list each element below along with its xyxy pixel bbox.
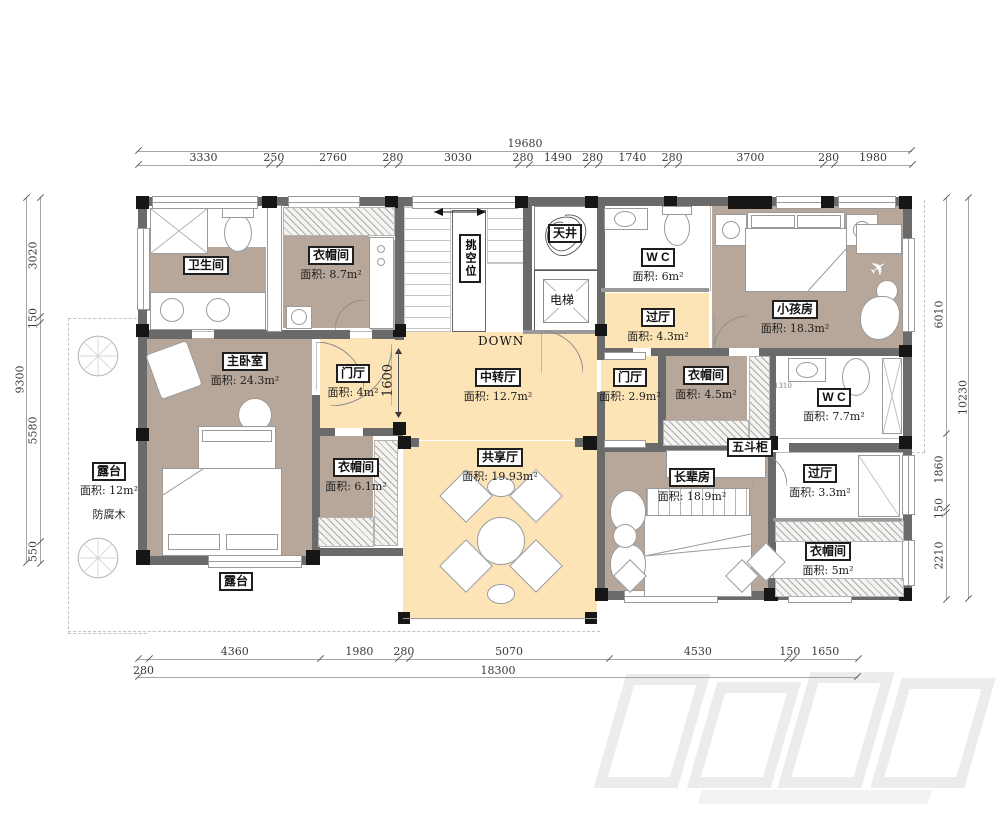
pillow <box>797 215 841 228</box>
wardrobe-hatch <box>318 517 374 547</box>
oval-stool <box>487 584 515 604</box>
window <box>838 196 896 209</box>
dim-label: 3020 <box>27 229 40 283</box>
room-area: 面积: 6m² <box>612 268 704 284</box>
room-label-cloak-right: 衣帽间 面积: 5m² <box>786 542 870 578</box>
room-note: 防腐木 <box>78 506 140 522</box>
room-name: 共享厅 <box>477 448 523 467</box>
room-label-shared: 共享厅 面积: 19.93m² <box>438 448 562 484</box>
right-property-dash <box>924 200 925 452</box>
door-leaf <box>604 440 646 448</box>
dim-label: 280 <box>571 151 615 164</box>
watermark <box>610 668 1000 828</box>
dim-label: 1650 <box>803 645 847 658</box>
room-name: 小孩房 <box>772 300 818 319</box>
column <box>393 422 406 435</box>
dim-label: 5070 <box>487 645 531 658</box>
column <box>136 324 149 337</box>
dim-line <box>40 197 41 563</box>
dim-total-left: 9300 <box>14 353 27 407</box>
dim-label: 250 <box>252 151 296 164</box>
dim-tick <box>943 596 950 603</box>
wall-stairs-left <box>395 206 404 340</box>
toilet-tank <box>662 206 692 215</box>
column <box>821 196 834 208</box>
dim-label: 6010 <box>933 288 946 342</box>
dim-label: 2210 <box>933 528 946 582</box>
column <box>595 324 607 336</box>
dim-label: 280 <box>807 151 851 164</box>
dim-label: 5580 <box>27 404 40 458</box>
room-name: 露台 <box>92 462 126 481</box>
room-name: 衣帽间 <box>308 246 354 265</box>
floor-plan: 挑空位 DOWN 天井 电梯 <box>0 0 1000 833</box>
dim-label: 4360 <box>213 645 257 658</box>
shower-panel <box>882 358 902 434</box>
room-label-kids: 小孩房 面积: 18.3m² <box>742 300 848 336</box>
room-label-bathroom: 卫生间 <box>152 256 260 275</box>
room-label-master: 主卧室 面积: 24.3m² <box>192 352 298 388</box>
room-area: 面积: 4m² <box>322 384 384 400</box>
room-name: 中转厅 <box>475 368 521 387</box>
dim-label: 280 <box>650 151 694 164</box>
terrace-bottom-dash <box>68 631 600 632</box>
room-area: 面积: 18.3m² <box>742 320 848 336</box>
wall-topleft-b <box>214 330 350 339</box>
room-area: 面积: 5m² <box>786 562 870 578</box>
dim-label: 150 <box>27 291 40 345</box>
pillow <box>751 215 795 228</box>
room-name: 天井 <box>548 224 582 243</box>
room-label-dresser: 五斗柜 <box>718 438 782 457</box>
dim-label: 280 <box>122 664 166 677</box>
dim-label: 1980 <box>851 151 895 164</box>
room-label-hall-top: 过厅 面积: 4.3m² <box>612 308 704 344</box>
room-label-terrace-bottom: 露台 <box>208 572 264 591</box>
sink-icon <box>796 362 818 378</box>
dim-total-top: 19680 <box>495 137 555 150</box>
dim-line <box>138 659 858 660</box>
dim-total-bottom-line <box>138 677 858 678</box>
toilet-icon <box>664 210 690 246</box>
room-area: 面积: 4.3m² <box>612 328 704 344</box>
room-name: W C <box>817 388 850 407</box>
room-area: 面积: 7.7m² <box>786 408 882 424</box>
dim-label: 3330 <box>181 151 225 164</box>
room-label-cloak-mid: 衣帽间 面积: 4.5m² <box>662 366 750 402</box>
door-arc <box>335 300 365 330</box>
room-name: 主卧室 <box>222 352 268 371</box>
tree-icon <box>76 536 120 580</box>
toilet-icon <box>224 214 252 252</box>
skywell-label: 天井 <box>536 224 594 243</box>
dim-line <box>946 197 947 599</box>
dim-label: 3700 <box>728 151 772 164</box>
room-label-terrace-left: 露台 面积: 12m² 防腐木 <box>78 462 140 522</box>
toilet-tank <box>222 208 254 218</box>
column <box>899 345 912 357</box>
column <box>583 436 597 450</box>
wall-foyer-cloak-a <box>315 428 335 436</box>
duct-shaft <box>267 205 282 332</box>
side-table <box>613 524 637 548</box>
wall-skywell-left <box>523 206 532 332</box>
column <box>585 196 598 208</box>
window <box>137 228 150 310</box>
room-name: 露台 <box>219 572 253 591</box>
room-name: 过厅 <box>803 464 837 483</box>
room-area: 面积: 3.3m² <box>778 484 862 500</box>
tall-cabinet <box>858 455 900 517</box>
appliance-drum <box>291 309 307 325</box>
room-area: 面积: 2.9m² <box>598 388 662 404</box>
wardrobe-hatch <box>775 521 904 542</box>
inner-dim-1600 <box>398 350 399 414</box>
room-area: 面积: 12.7m² <box>446 388 550 404</box>
column <box>262 196 277 208</box>
dim-label: 4530 <box>676 645 720 658</box>
door-leaf <box>604 352 646 360</box>
window <box>208 555 302 568</box>
dim-label: 550 <box>27 524 40 578</box>
room-name: 五斗柜 <box>727 438 773 457</box>
sink-icon <box>614 211 636 227</box>
room-label-wc-right: W C 面积: 7.7m² <box>786 388 882 424</box>
room-area: 面积: 6.1m² <box>312 478 400 494</box>
wardrobe-hatch <box>775 578 904 597</box>
dim-tick <box>908 147 915 154</box>
elevator-label: 电梯 <box>548 291 576 308</box>
room-area: 面积: 24.3m² <box>192 372 298 388</box>
room-label-elder: 长辈房 面积: 18.9m² <box>634 468 750 504</box>
wall-cloak-bottom <box>312 548 403 556</box>
room-name: 衣帽间 <box>683 366 729 385</box>
wardrobe-hatch <box>283 207 395 236</box>
room-label-hall-right: 过厅 面积: 3.3m² <box>778 464 862 500</box>
column <box>899 196 912 209</box>
room-area: 面积: 19.93m² <box>438 468 562 484</box>
room-area: 面积: 18.9m² <box>634 488 750 504</box>
dim-label: 280 <box>371 151 415 164</box>
room-area: 面积: 12m² <box>78 482 140 498</box>
shared-hall-rail <box>403 618 597 619</box>
column <box>515 196 528 208</box>
room-label-cloak-top: 衣帽间 面积: 8.7m² <box>283 246 379 282</box>
dim-label: 2760 <box>311 151 355 164</box>
window <box>902 455 915 515</box>
sofa-back <box>202 430 272 442</box>
column <box>136 196 149 209</box>
room-label-cloak-master: 衣帽间 面积: 6.1m² <box>312 458 400 494</box>
window <box>902 238 915 332</box>
room-name: 门厅 <box>613 368 647 387</box>
tree-icon <box>76 334 120 378</box>
room-label-foyer-small: 门厅 面积: 2.9m² <box>598 368 662 404</box>
door-arc <box>541 331 583 373</box>
room-label-foyer-master: 门厅 面积: 4m² <box>322 364 384 400</box>
stairs-flight-right <box>487 206 524 264</box>
room-name: 门厅 <box>336 364 370 383</box>
pillow <box>168 534 220 550</box>
column <box>398 436 411 449</box>
wall-spine-bottom <box>597 452 605 591</box>
pillow <box>226 534 278 550</box>
bed <box>745 228 847 292</box>
room-name: 卫生间 <box>183 256 229 275</box>
room-name: 衣帽间 <box>333 458 379 477</box>
lamp-icon <box>722 221 740 239</box>
dim-line <box>138 165 912 166</box>
window <box>776 196 822 209</box>
dim-total-right: 10230 <box>957 371 970 425</box>
dim-label: 1740 <box>610 151 654 164</box>
room-label-wc-top: W C 面积: 6m² <box>612 248 704 284</box>
wall-kids-bottom-b <box>759 348 903 356</box>
room-area: 面积: 4.5m² <box>662 386 750 402</box>
column <box>306 550 320 565</box>
sink-icon <box>160 298 184 322</box>
dim-label: 1980 <box>337 645 381 658</box>
down-label: DOWN <box>478 334 524 348</box>
void-label: 挑空位 <box>459 234 481 283</box>
column <box>136 428 149 441</box>
room-name: 过厅 <box>641 308 675 327</box>
column <box>136 550 150 565</box>
shower <box>150 208 208 254</box>
dim-label: 280 <box>382 645 426 658</box>
dim-total-bottom: 18300 <box>468 664 528 677</box>
wardrobe-hatch <box>749 356 770 446</box>
wall-hall-foyer-b <box>651 348 709 356</box>
room-area: 面积: 8.7m² <box>283 266 379 282</box>
wall-wc-hall-divider <box>601 288 709 292</box>
stairs-flight-left <box>404 206 451 332</box>
dim-label: 3030 <box>436 151 480 164</box>
sink-icon <box>206 298 230 322</box>
room-name: 长辈房 <box>669 468 715 487</box>
column <box>595 588 608 601</box>
dim-tick <box>909 161 916 168</box>
column-beam <box>728 196 772 209</box>
wall-elder-top-b <box>789 443 903 452</box>
room-name: W C <box>641 248 674 267</box>
room-name: 衣帽间 <box>805 542 851 561</box>
column <box>899 436 912 449</box>
stairs-arrow-icon <box>430 206 490 218</box>
room-label-transfer: 中转厅 面积: 12.7m² <box>446 368 550 404</box>
dim-tick <box>965 595 972 602</box>
desk <box>856 224 902 254</box>
